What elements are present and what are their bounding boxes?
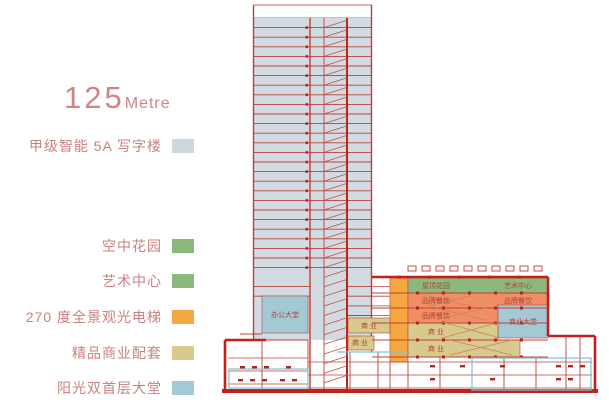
floor-dot (306, 36, 309, 39)
parapet-dash (520, 266, 528, 271)
parking-dash (500, 365, 505, 367)
parking-dash (568, 365, 573, 367)
commercial-lobby-label: 商业大堂 (509, 317, 537, 326)
dining-right-label: 品牌餐饮 (504, 296, 532, 305)
retail-1-label: 商 业 (428, 327, 444, 336)
parapet-dash (450, 266, 458, 271)
parking-dash (280, 379, 285, 381)
dining-left2-label: 品牌餐饮 (422, 311, 450, 320)
floor-dot (306, 84, 309, 87)
parking-dash (292, 379, 297, 381)
parking-dash (286, 366, 291, 368)
tower-crown (254, 5, 372, 18)
band-dot (416, 322, 419, 325)
parapet-dash (506, 266, 514, 271)
retail-band-2 (408, 340, 520, 357)
band-dot (520, 307, 523, 310)
floor-dot (306, 238, 309, 241)
floor-dot (306, 266, 309, 269)
band-dot (416, 356, 419, 359)
parking-dash (580, 365, 585, 367)
band-dot (442, 307, 445, 310)
retail-4-label: 商 业 (352, 338, 368, 347)
band-dot (494, 307, 497, 310)
sightseeing-elevator (390, 278, 408, 362)
basement-step (548, 336, 595, 392)
band-dot (468, 339, 471, 342)
band-dot (416, 339, 419, 342)
floor-dot (306, 26, 309, 29)
parking-dash (262, 379, 267, 381)
floor-dot (306, 65, 309, 68)
floor-dot (306, 46, 309, 49)
floor-dot (306, 161, 309, 164)
floor-dot (306, 190, 309, 193)
parapet-dash (464, 266, 472, 271)
parapet-dash (408, 266, 416, 271)
floor-dot (306, 74, 309, 77)
floor-dot (306, 132, 309, 135)
floor-dot (306, 257, 309, 260)
band-dot (442, 356, 445, 359)
art-center-label: 艺术中心 (504, 281, 532, 290)
page: 125Metre 甲级智能 5A 写字楼 空中花园 艺术中心 270 度全景观光… (0, 0, 609, 420)
band-dot (442, 292, 445, 295)
floor-dot (306, 228, 309, 231)
parking-dash (250, 379, 255, 381)
band-dot (416, 292, 419, 295)
band-dot (442, 339, 445, 342)
parapet-dash (436, 266, 444, 271)
band-dot (520, 339, 523, 342)
floor-dot (306, 218, 309, 221)
band-dot (468, 307, 471, 310)
parking-dash (238, 379, 243, 381)
dining-left-label: 品牌餐饮 (422, 296, 450, 305)
floor-dot (306, 122, 309, 125)
parking-dash (490, 378, 495, 380)
parking-dash (556, 365, 561, 367)
band-dot (468, 356, 471, 359)
floor-dot (306, 209, 309, 212)
floor-dot (306, 199, 309, 202)
retail-band-1 (408, 323, 498, 340)
parapet-dash (492, 266, 500, 271)
floor-dot (306, 55, 309, 58)
roof-garden-label: 屋顶花园 (422, 281, 450, 290)
band-dot (494, 292, 497, 295)
parking-dash (556, 378, 561, 380)
floor-dot (306, 247, 309, 250)
floor-dot (306, 180, 309, 183)
band-dot (520, 292, 523, 295)
band-dot (468, 292, 471, 295)
floor-dot (306, 170, 309, 173)
floor-dot (306, 113, 309, 116)
parking-dash (568, 378, 573, 380)
band-dot (468, 322, 471, 325)
office-lobby-label: 办公大堂 (271, 310, 299, 319)
parking-dash (240, 366, 245, 368)
parking-dash (264, 366, 269, 368)
parapet-dash (534, 266, 542, 271)
parking-dash (430, 365, 435, 367)
parapet-dash (478, 266, 486, 271)
retail-2-label: 商 业 (428, 344, 444, 353)
floor-dot (306, 151, 309, 154)
floor-dot (306, 142, 309, 145)
building-section-drawing: 办公大堂屋顶花园艺术中心品牌餐饮品牌餐饮品牌餐饮商业大堂商 业商 业商 业商 业 (0, 0, 609, 420)
retail-3-label: 商 业 (361, 321, 377, 330)
band-dot (416, 307, 419, 310)
floor-dot (306, 94, 309, 97)
parking-dash (252, 366, 257, 368)
parking-dash (430, 378, 435, 380)
floor-dot (306, 103, 309, 106)
parking-dash (460, 365, 465, 367)
band-dot (494, 339, 497, 342)
parapet-dash (422, 266, 430, 271)
